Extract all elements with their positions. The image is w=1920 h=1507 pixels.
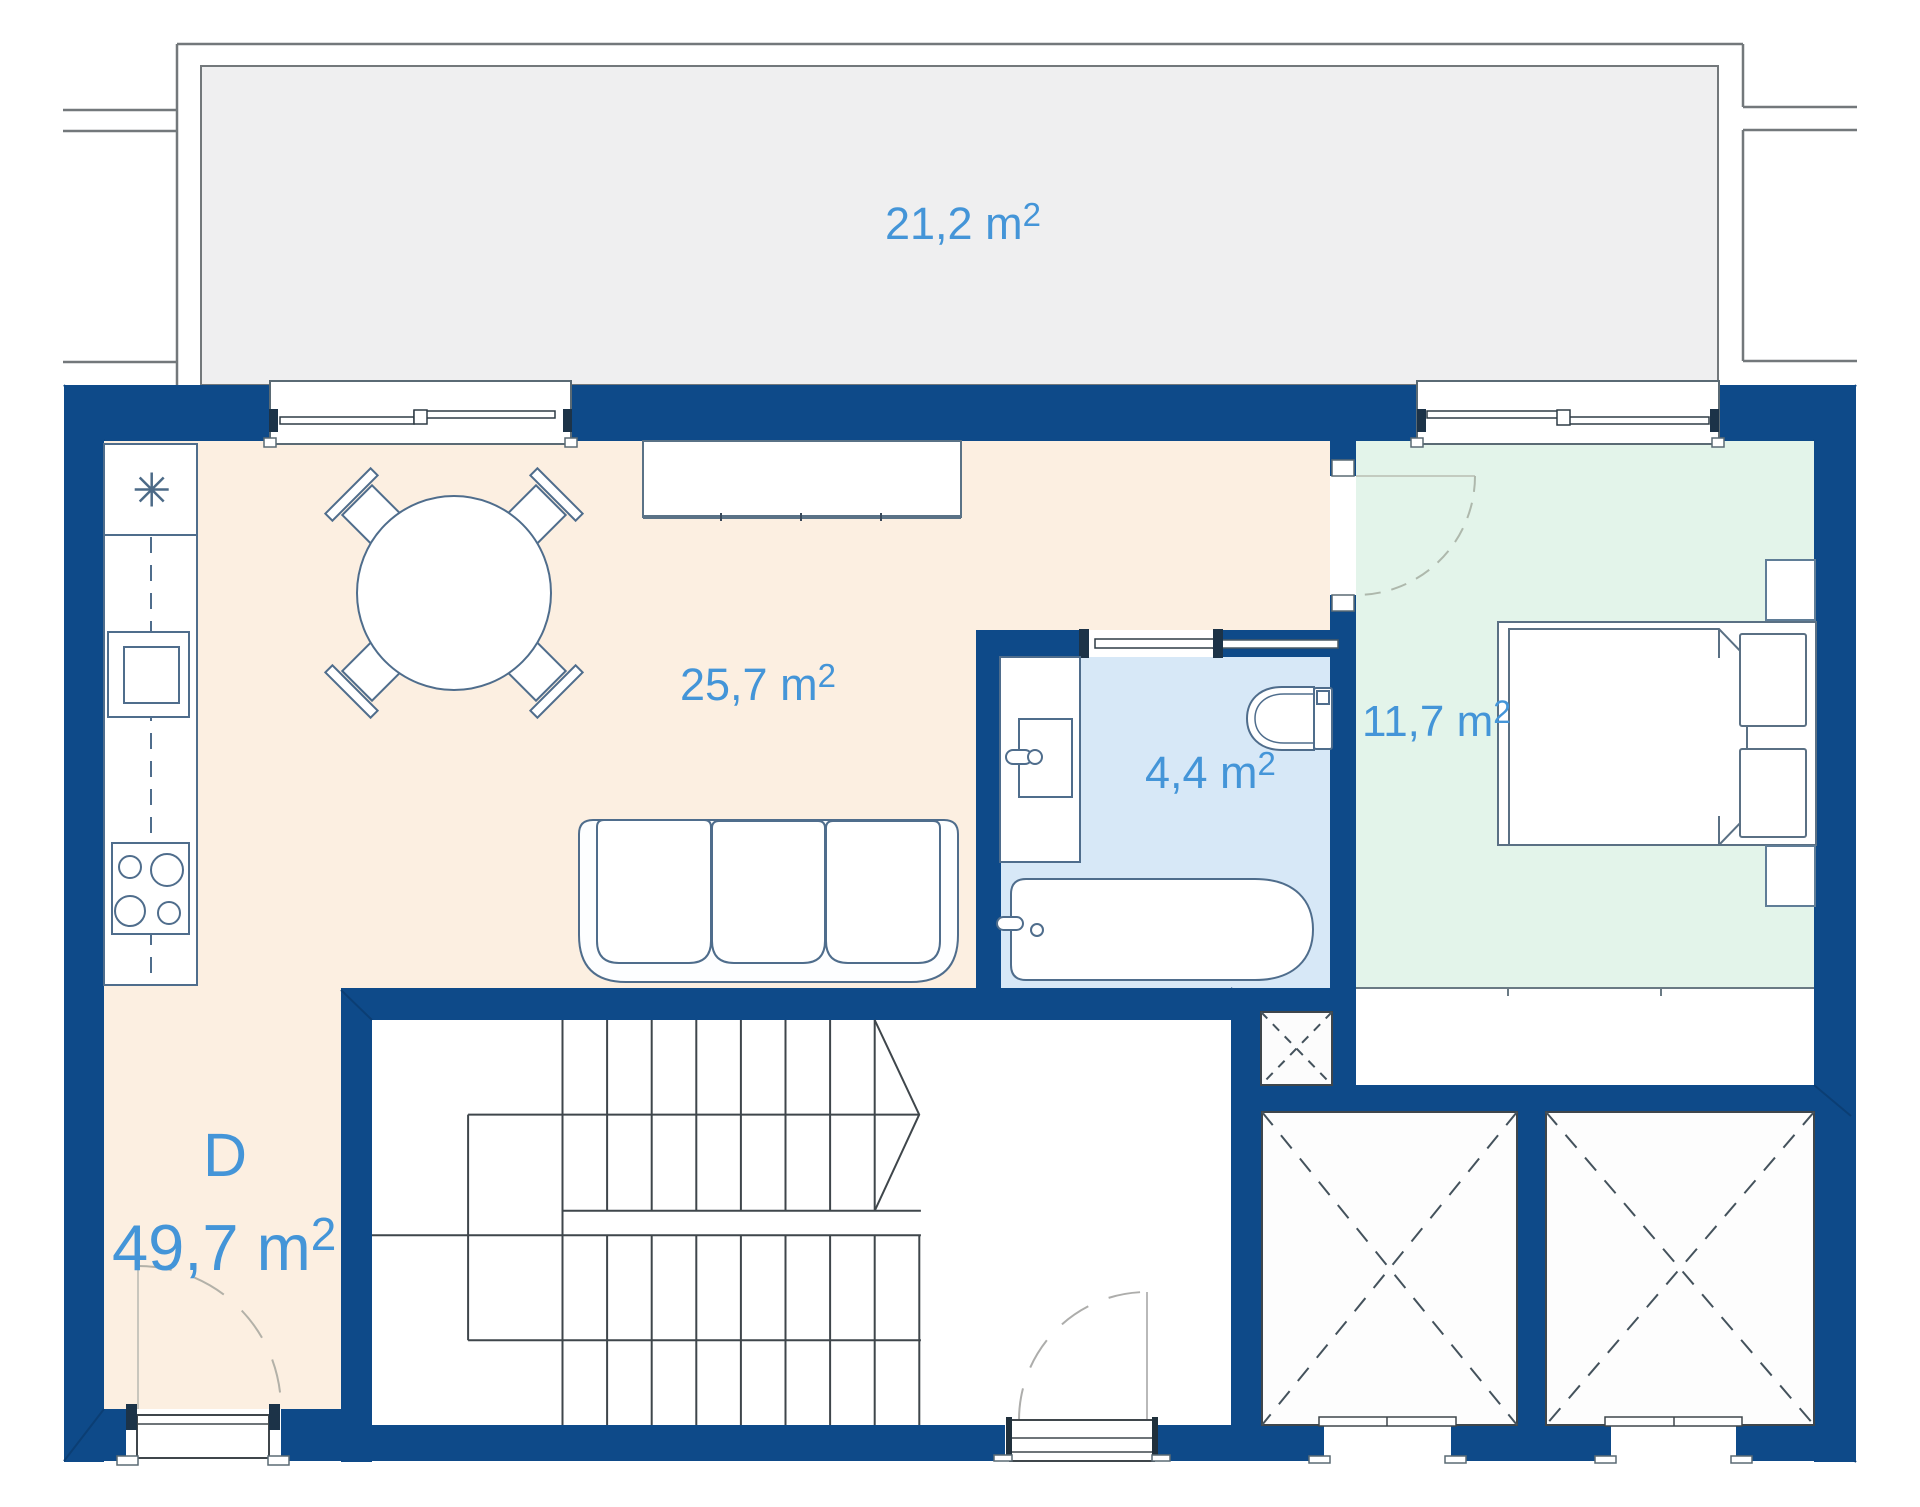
- svg-text:49,7 m2: 49,7 m2: [112, 1208, 336, 1284]
- svg-text:4,4 m2: 4,4 m2: [1145, 745, 1276, 798]
- svg-text:21,2 m2: 21,2 m2: [885, 196, 1041, 249]
- svg-text:11,7 m2: 11,7 m2: [1362, 694, 1511, 746]
- svg-text:25,7 m2: 25,7 m2: [680, 657, 836, 710]
- svg-text:D: D: [203, 1121, 247, 1189]
